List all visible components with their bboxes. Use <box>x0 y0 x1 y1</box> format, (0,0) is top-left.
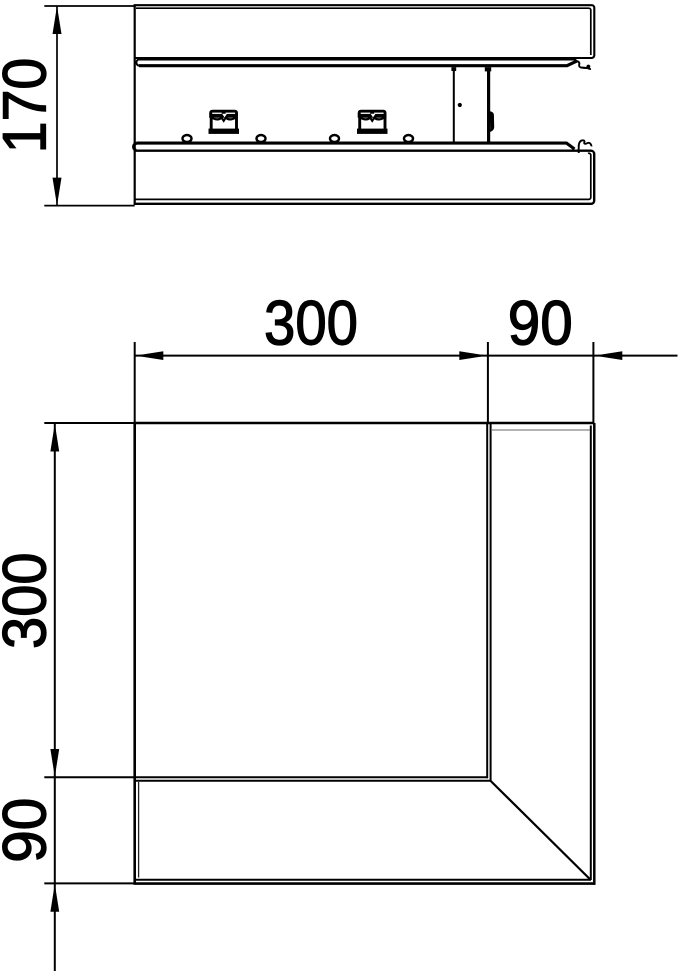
svg-text:170: 170 <box>0 58 59 154</box>
svg-text:300: 300 <box>264 289 358 359</box>
svg-text:300: 300 <box>0 552 59 649</box>
svg-text:90: 90 <box>0 798 59 863</box>
svg-text:90: 90 <box>508 289 573 359</box>
